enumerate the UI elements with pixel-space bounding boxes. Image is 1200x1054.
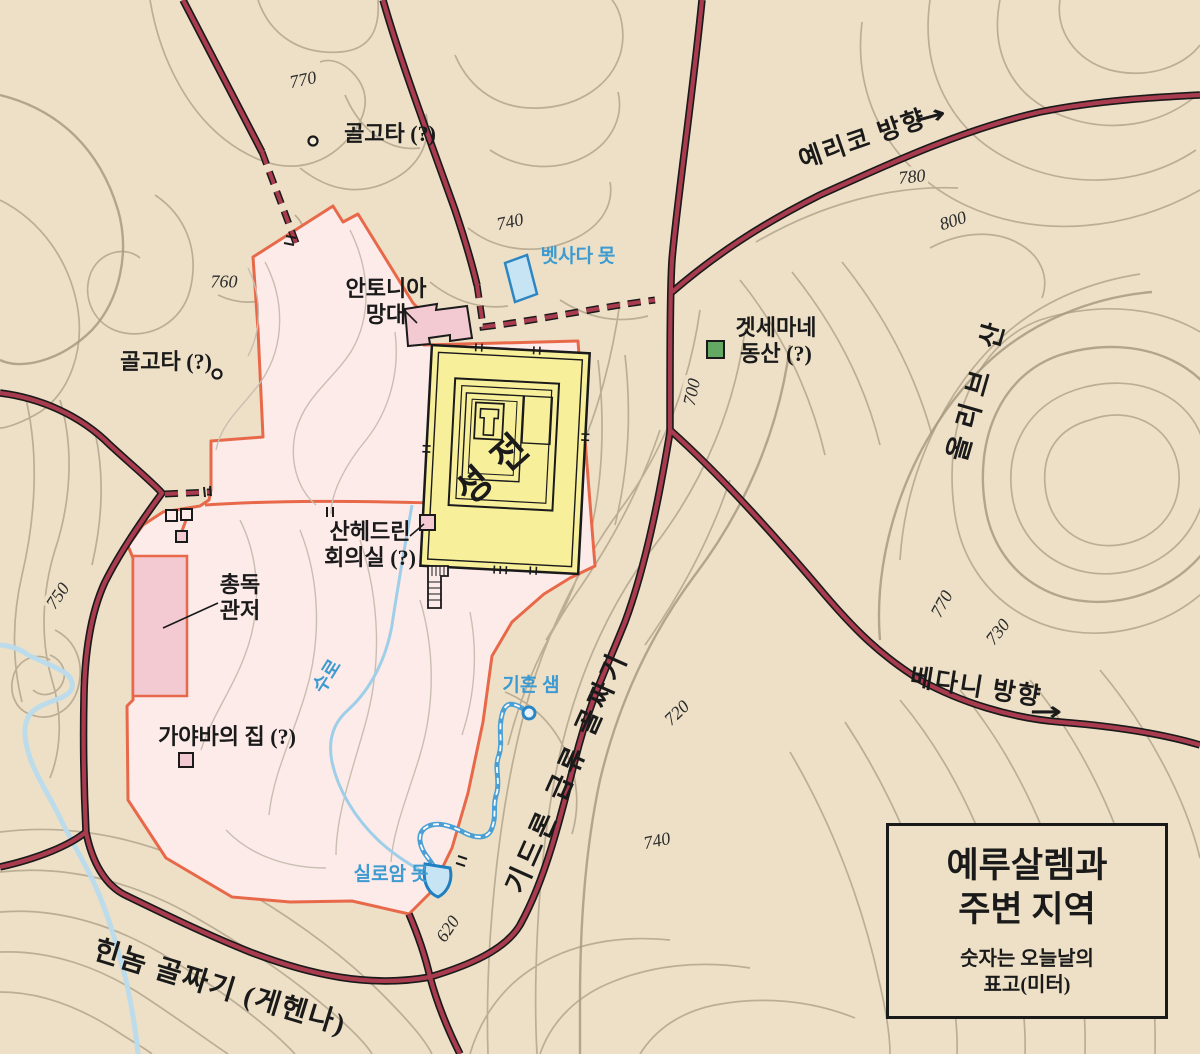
- gihon-spring-marker: [523, 707, 535, 719]
- label-antonia-line2: 망대: [346, 302, 427, 328]
- label-gethsemane-line2: 동산 (?): [736, 341, 817, 367]
- map-title-line2: 주변 지역: [889, 888, 1165, 932]
- governor-palace-building: [133, 556, 187, 696]
- map-subtitle: 숫자는 오늘날의 표고(미터): [889, 946, 1165, 998]
- label-sanhedrin: 산헤드린 회의실 (?): [324, 519, 416, 571]
- map-subtitle-line1: 숫자는 오늘날의: [889, 946, 1165, 972]
- label-antonia-line1: 안토니아: [346, 276, 427, 302]
- label-sanhedrin-line2: 회의실 (?): [324, 545, 416, 571]
- golgotha-north-marker: [309, 137, 318, 146]
- label-gethsemane-line1: 겟세마네: [736, 315, 817, 341]
- map-title: 예루살렘과 주변 지역: [889, 844, 1165, 932]
- map-subtitle-line2: 표고(미터): [889, 972, 1165, 998]
- label-gethsemane: 겟세마네 동산 (?): [736, 315, 817, 367]
- gethsemane-marker: [707, 341, 724, 358]
- map-title-box: 예루살렘과 주변 지역 숫자는 오늘날의 표고(미터): [886, 823, 1168, 1019]
- label-golgotha-west: 골고타 (?): [120, 349, 212, 375]
- label-governor-line1: 총독: [220, 572, 260, 598]
- label-caiaphas: 가야바의 집 (?): [158, 724, 296, 750]
- golgotha-west-marker: [213, 370, 222, 379]
- elevation-label: 760: [209, 272, 240, 293]
- jerusalem-map: 골고타 (?) 골고타 (?) 안토니아 망대 성전 산헤드린 회의실 (?) …: [0, 0, 1200, 1054]
- sanhedrin-building: [420, 515, 435, 530]
- bethany-arrow-icon: →: [1030, 697, 1063, 727]
- label-antonia: 안토니아 망대: [346, 276, 427, 328]
- label-gihon-spring: 기혼 샘: [502, 675, 559, 697]
- bethesda-pool: [505, 255, 537, 302]
- label-golgotha-north: 골고타 (?): [344, 121, 436, 147]
- label-sanhedrin-line1: 산헤드린: [324, 519, 416, 545]
- label-governor-line2: 관저: [220, 598, 260, 624]
- nw-building-2: [181, 509, 192, 520]
- map-title-line1: 예루살렘과: [889, 844, 1165, 888]
- elevation-label: 780: [895, 165, 928, 189]
- label-governor: 총독 관저: [220, 572, 260, 624]
- label-siloam-pool: 실로암 못: [354, 864, 429, 886]
- nw-building-1: [166, 510, 177, 521]
- nw-building-3: [176, 531, 187, 542]
- label-bethesda-pool: 벳사다 못: [541, 246, 616, 268]
- caiaphas-building: [179, 753, 193, 767]
